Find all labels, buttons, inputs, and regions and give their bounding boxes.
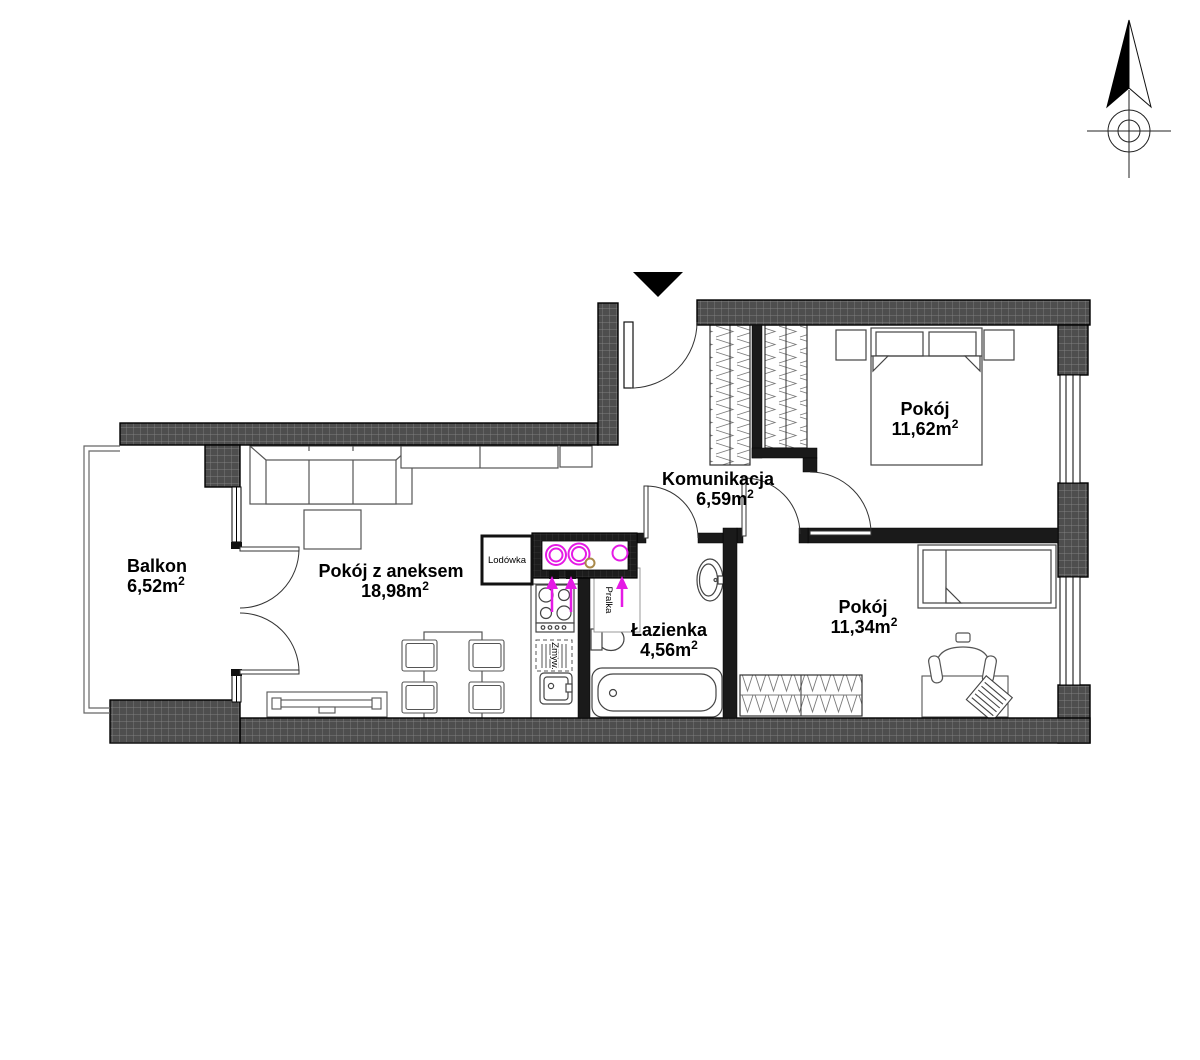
wardrobe xyxy=(710,325,750,465)
dining-chair xyxy=(469,682,504,713)
room-area: 11,62m2 xyxy=(892,417,959,439)
dining-chair xyxy=(402,640,437,671)
coffee-table xyxy=(304,510,361,549)
dining-chair xyxy=(469,640,504,671)
room-label-lazienka: Łazienka 4,56m2 xyxy=(631,620,708,660)
fridge: Lodówka xyxy=(482,536,532,584)
tv-stand xyxy=(267,692,387,717)
north-arrow-icon xyxy=(1087,20,1171,178)
wardrobe xyxy=(765,325,807,448)
window xyxy=(232,674,241,702)
balcony-railing xyxy=(84,446,120,713)
entrance-marker xyxy=(633,272,683,297)
kitchen-sink xyxy=(540,673,572,704)
room-name: Pokój xyxy=(838,597,887,617)
single-bed xyxy=(918,545,1056,608)
washbasin xyxy=(697,559,726,601)
room-name: Pokój z aneksem xyxy=(318,561,463,581)
floor-plan-page: Lodówka Pralka Zmyw. xyxy=(0,0,1200,1060)
room-name: Pokój xyxy=(900,399,949,419)
wardrobe xyxy=(740,675,862,716)
room-area: 4,56m2 xyxy=(640,638,698,660)
room-label-balkon: Balkon 6,52m2 xyxy=(127,556,187,596)
room-area: 11,34m2 xyxy=(831,615,898,637)
pillow xyxy=(876,332,923,356)
sideboard xyxy=(401,446,592,468)
pillow xyxy=(929,332,976,356)
room-area: 6,59m2 xyxy=(696,487,754,509)
bedroom-door xyxy=(810,472,871,535)
double-bed xyxy=(836,328,1014,465)
room-label-pokoj-2: Pokój 11,34m2 xyxy=(831,597,898,637)
dining-chair xyxy=(402,682,437,713)
room-area: 6,52m2 xyxy=(127,574,185,596)
sofa xyxy=(250,442,412,504)
room-area: 18,98m2 xyxy=(361,579,429,601)
room-label-komunikacja: Komunikacja 6,59m2 xyxy=(662,469,775,509)
gas-point xyxy=(586,559,595,568)
installation-shaft xyxy=(532,533,637,579)
bathtub xyxy=(592,668,722,717)
nightstand xyxy=(836,330,866,360)
room-label-pokoj-1: Pokój 11,62m2 xyxy=(892,399,959,439)
washing-machine-label: Pralka xyxy=(603,587,614,615)
entrance-door xyxy=(624,322,697,388)
dishwasher-label: Zmyw. xyxy=(549,642,560,669)
stove xyxy=(536,585,574,632)
floor-plan: Lodówka Pralka Zmyw. xyxy=(0,0,1200,1060)
fridge-label: Lodówka xyxy=(488,555,527,566)
window xyxy=(232,487,241,542)
window xyxy=(1060,375,1080,483)
room-label-pokoj-z-aneksem: Pokój z aneksem 18,98m2 xyxy=(318,561,463,601)
window xyxy=(1060,577,1080,685)
room-name: Komunikacja xyxy=(662,469,775,489)
nightstand xyxy=(984,330,1014,360)
bathroom-door xyxy=(644,486,698,538)
balcony-door xyxy=(231,542,299,676)
room-name: Balkon xyxy=(127,556,187,576)
room-name: Łazienka xyxy=(631,620,708,640)
